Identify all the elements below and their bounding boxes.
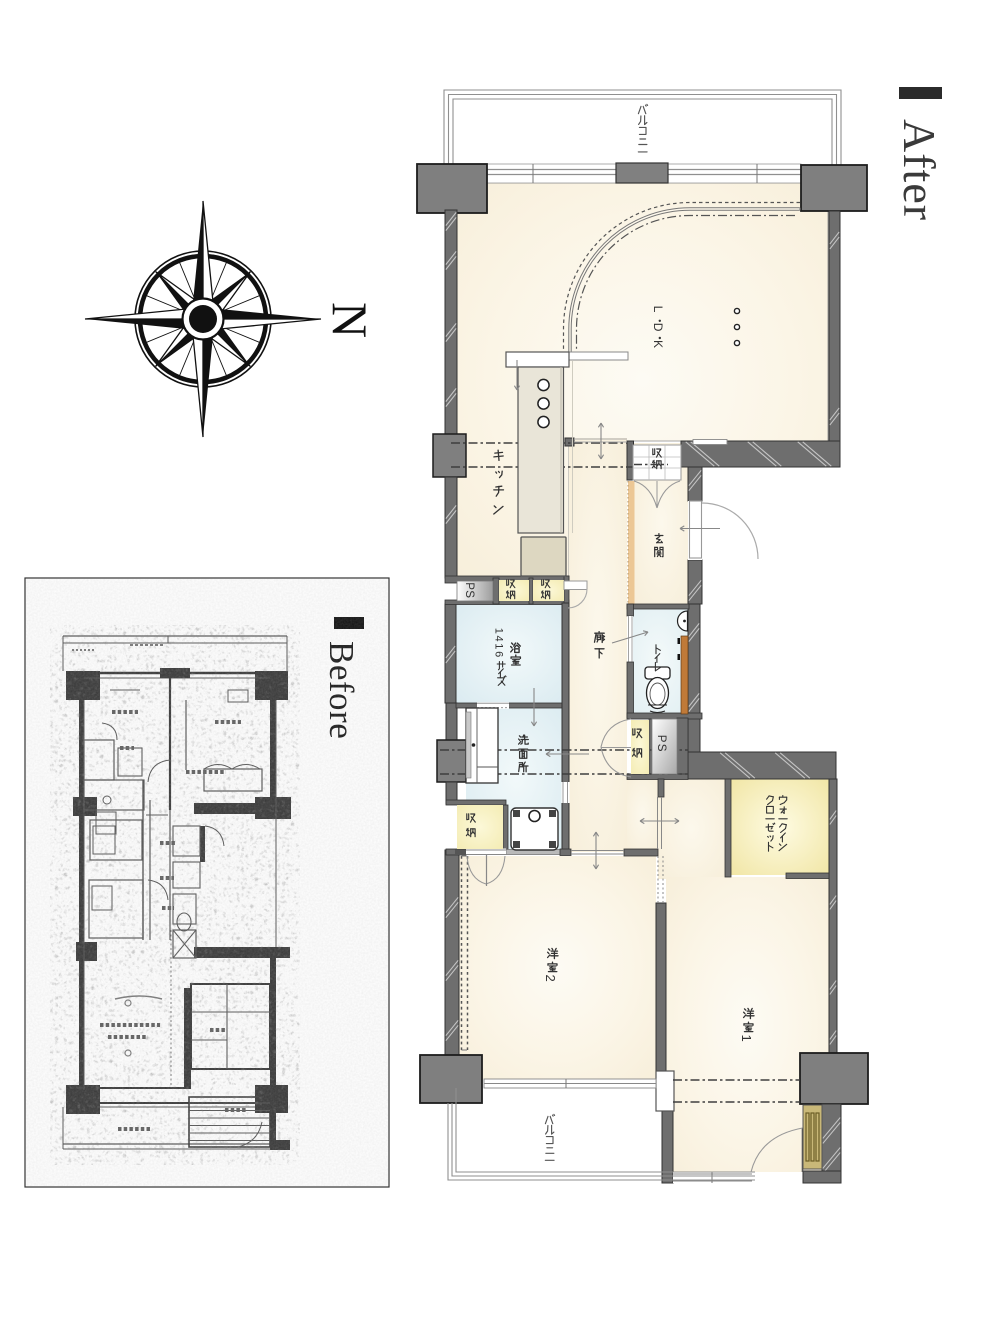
svg-text:2: 2 bbox=[543, 975, 558, 982]
svg-text:After: After bbox=[894, 119, 945, 221]
svg-text:P: P bbox=[463, 582, 476, 590]
svg-text:4: 4 bbox=[493, 636, 505, 642]
svg-text:S: S bbox=[463, 590, 476, 598]
svg-text:1: 1 bbox=[739, 1035, 754, 1042]
svg-text:1: 1 bbox=[493, 628, 505, 634]
svg-text:P: P bbox=[655, 735, 668, 743]
svg-text:L: L bbox=[651, 306, 665, 313]
svg-text:1: 1 bbox=[493, 643, 505, 649]
svg-text:K: K bbox=[651, 340, 665, 348]
svg-text:N: N bbox=[322, 302, 378, 338]
svg-text:D: D bbox=[651, 323, 665, 332]
svg-text:6: 6 bbox=[493, 651, 505, 657]
svg-text:S: S bbox=[655, 744, 668, 752]
